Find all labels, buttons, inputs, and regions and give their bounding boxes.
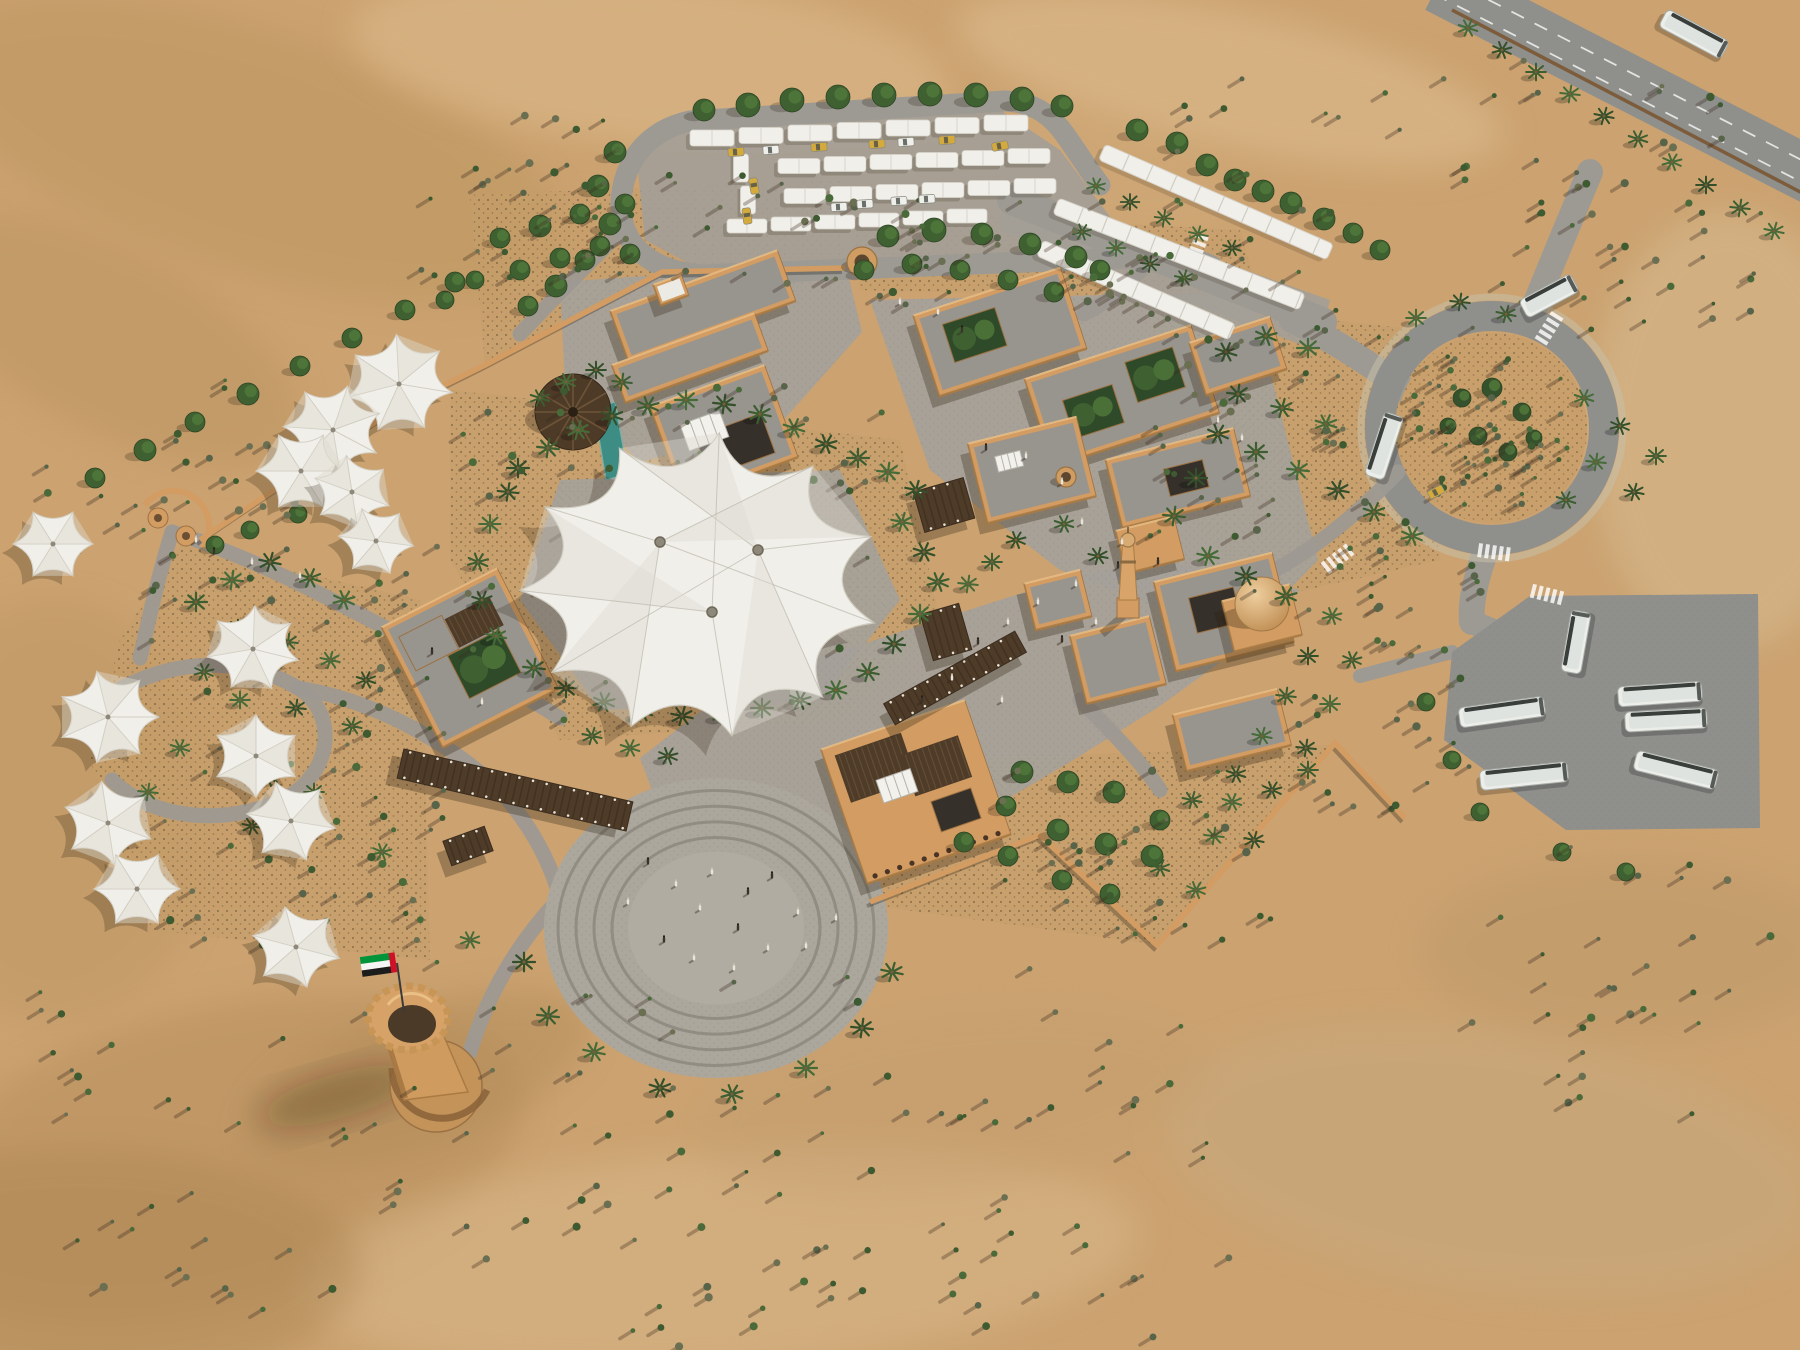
parked-car (891, 196, 907, 205)
aerial-site-render (0, 0, 1800, 1350)
person (977, 639, 979, 645)
person (213, 549, 215, 555)
person (647, 859, 649, 865)
person (937, 309, 939, 315)
parked-car (742, 207, 753, 224)
person (899, 299, 901, 305)
person (767, 945, 769, 951)
person (985, 445, 987, 451)
desert-heritage-village-render (0, 0, 1800, 1350)
parked-car (763, 145, 780, 154)
parked-car (728, 147, 745, 156)
person (1061, 479, 1063, 485)
person (1025, 453, 1027, 459)
person (1241, 435, 1243, 441)
person (711, 869, 713, 875)
bus (1621, 708, 1708, 737)
person (1117, 563, 1119, 569)
parked-car (939, 135, 956, 144)
parked-car (831, 202, 847, 211)
person (699, 905, 701, 911)
parked-car (811, 142, 828, 151)
parked-car (857, 199, 873, 208)
person (805, 943, 807, 949)
person (627, 899, 629, 905)
person (733, 965, 735, 971)
person (797, 909, 799, 915)
person (195, 537, 197, 543)
parked-car (869, 139, 886, 148)
canopy-mast-hub (707, 607, 717, 617)
person (299, 573, 301, 579)
person (951, 675, 953, 681)
person (1075, 581, 1077, 587)
person (737, 925, 739, 931)
person (747, 889, 749, 895)
person (251, 559, 253, 565)
person (693, 955, 695, 961)
person (1217, 417, 1219, 423)
person (431, 649, 433, 655)
parked-car (919, 194, 935, 203)
person (1121, 539, 1123, 545)
person (663, 937, 665, 943)
canopy-mast-hub (753, 545, 763, 555)
person (835, 915, 837, 921)
person (1157, 559, 1159, 565)
person (771, 873, 773, 879)
person (961, 327, 963, 333)
person (1007, 619, 1009, 625)
person (1037, 599, 1039, 605)
person (1095, 619, 1097, 625)
person (1081, 519, 1083, 525)
person (921, 697, 923, 703)
person (675, 881, 677, 887)
person (481, 699, 483, 705)
parked-car (898, 137, 915, 146)
person (1001, 697, 1003, 703)
canopy-mast-hub (655, 537, 665, 547)
person (1061, 637, 1063, 643)
